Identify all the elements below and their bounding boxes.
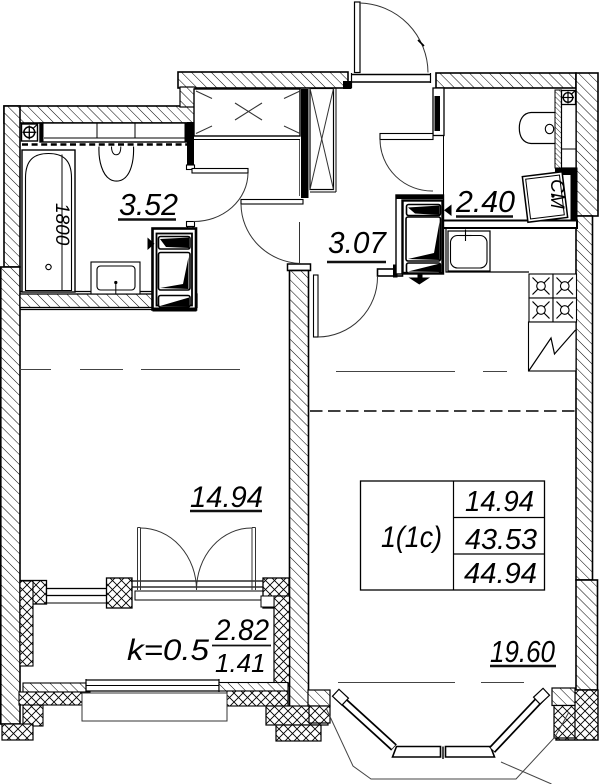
svg-text:19.60: 19.60 [490, 634, 555, 669]
svg-text:1.41: 1.41 [215, 648, 266, 678]
svg-text:CM: CM [546, 179, 567, 209]
svg-text:1(1c): 1(1c) [381, 521, 442, 554]
svg-text:1800: 1800 [51, 203, 72, 246]
svg-text:14.94: 14.94 [465, 486, 534, 518]
svg-text:2.40: 2.40 [455, 184, 515, 219]
svg-text:k=0.5: k=0.5 [127, 634, 209, 667]
svg-text:44.94: 44.94 [464, 558, 537, 590]
svg-text:2.82: 2.82 [214, 614, 269, 647]
svg-text:3.52: 3.52 [119, 187, 178, 222]
svg-text:14.94: 14.94 [190, 481, 263, 514]
svg-text:3.07: 3.07 [328, 225, 388, 260]
svg-text:43.53: 43.53 [465, 524, 537, 556]
